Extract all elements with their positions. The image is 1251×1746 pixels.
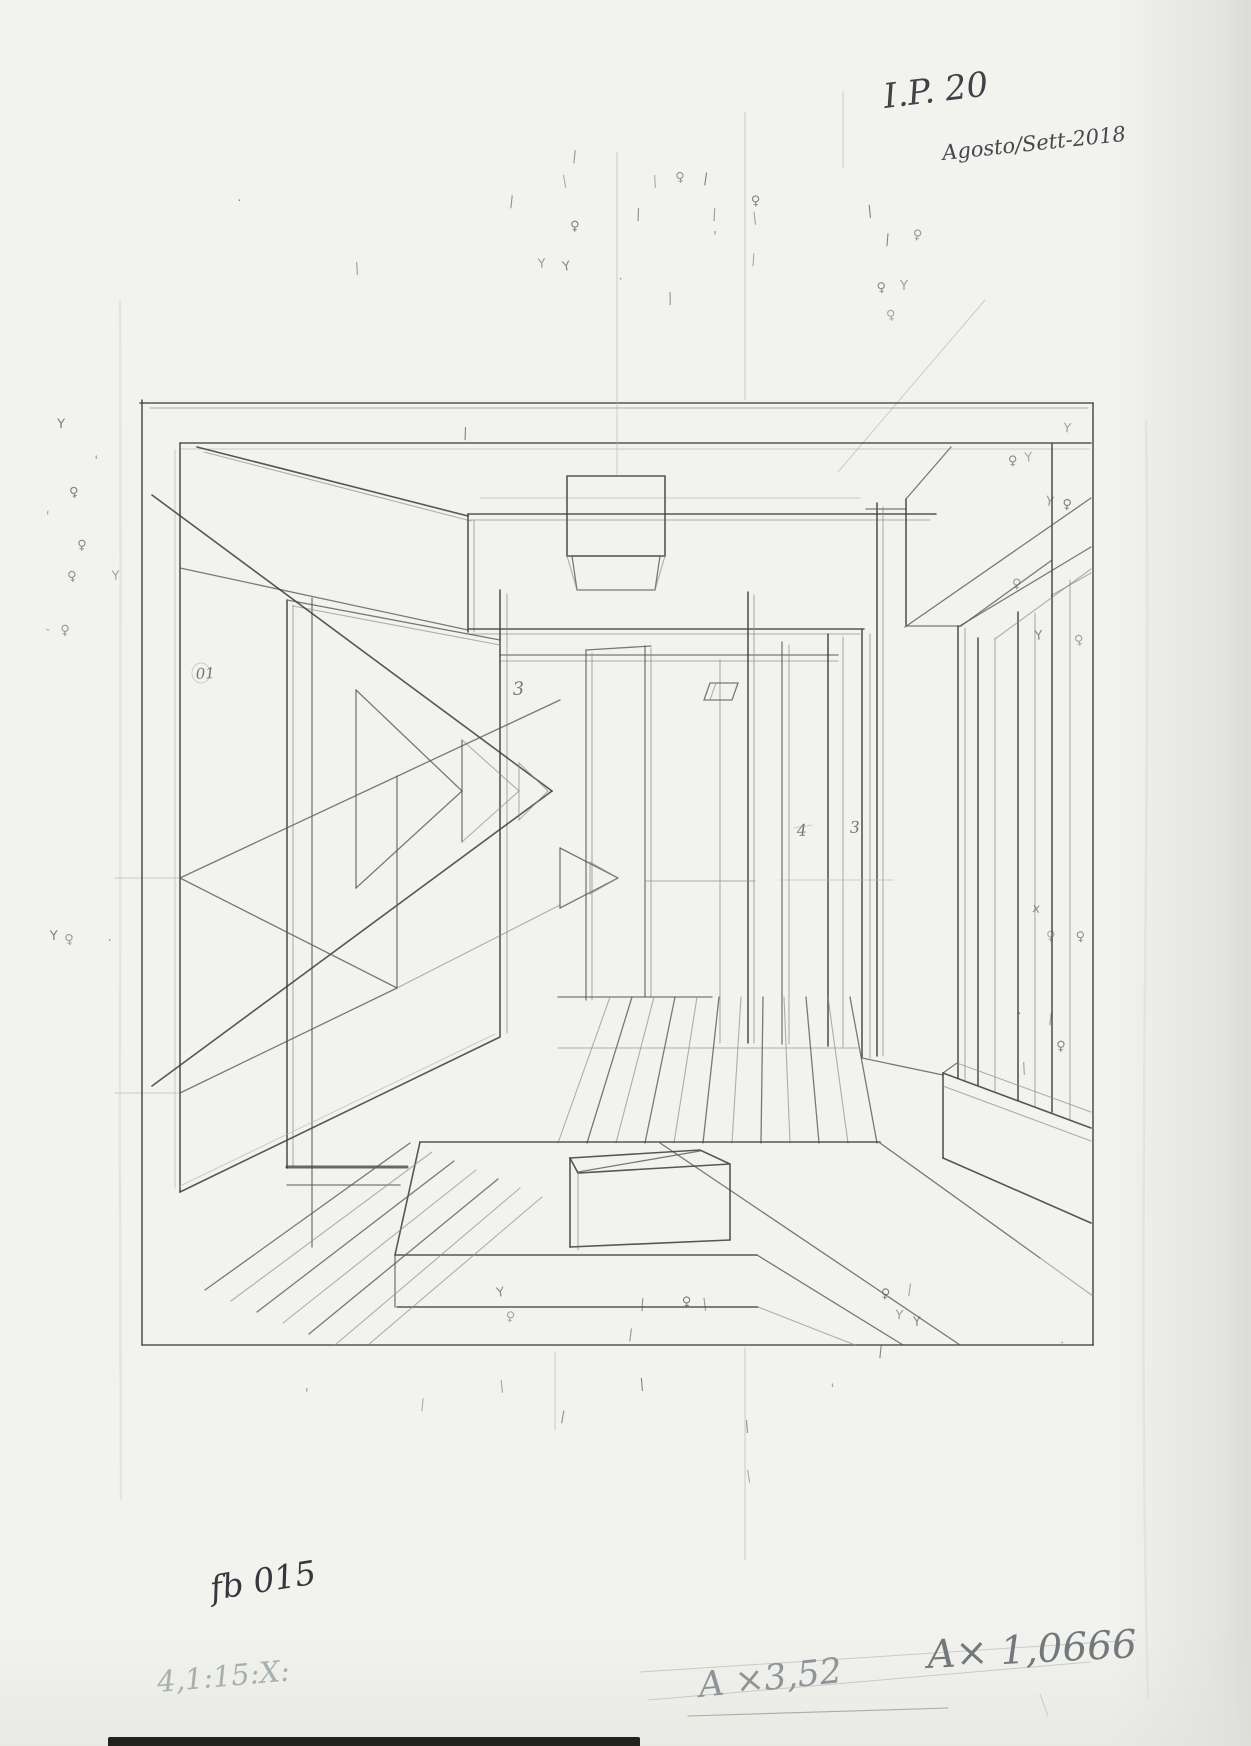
female-mark: ♀ xyxy=(876,280,887,296)
window-bench xyxy=(943,1063,1091,1223)
female-mark: ♀ xyxy=(77,538,87,553)
female-mark: ♀ xyxy=(682,1295,692,1310)
scan-edge-shadow xyxy=(108,1737,640,1746)
x-mark: x xyxy=(1032,901,1042,917)
paper-creases xyxy=(120,300,1148,1700)
outer-frame xyxy=(140,400,1093,1345)
tick-mark: | xyxy=(628,1327,634,1342)
annotation-top-right-date: Agosto/Sett-2018 xyxy=(939,122,1127,165)
female-mark: ♀ xyxy=(68,485,80,501)
female-mark: ♀ xyxy=(879,1286,891,1302)
tick-mark: | xyxy=(509,194,515,209)
y-mark: Y xyxy=(536,256,546,272)
tick-mark: | xyxy=(640,1297,645,1312)
tick-mark: | xyxy=(561,173,568,189)
scanned-paper-sheet: I.P. 20Agosto/Sett-2018fb 0154,1:15:X:A … xyxy=(0,0,1251,1746)
handwritten-annotations: I.P. 20Agosto/Sett-2018fb 0154,1:15:X:A … xyxy=(155,64,1138,1706)
female-mark: ♀ xyxy=(1008,454,1018,469)
tick-mark: | xyxy=(878,1344,884,1359)
perspective-drawing: I.P. 20Agosto/Sett-2018fb 0154,1:15:X:A … xyxy=(0,0,1251,1746)
figure-label-2: 4 xyxy=(795,820,807,840)
stroke-mark: ' xyxy=(830,1382,836,1397)
female-mark: ♀ xyxy=(1062,497,1073,513)
tick-mark: | xyxy=(572,149,578,164)
tick-mark: | xyxy=(702,1297,708,1312)
dash-mark: - xyxy=(44,622,51,638)
tick-mark: | xyxy=(885,232,891,247)
annotation-bottom-left-ratio: 4,1:15:X: xyxy=(155,1654,291,1700)
dot-mark: · xyxy=(1060,1336,1064,1351)
stroke-mark: ' xyxy=(94,454,99,469)
tick-mark: | xyxy=(652,174,657,189)
tick-mark: | xyxy=(744,1419,749,1434)
female-mark: ♀ xyxy=(751,194,761,209)
y-mark: Y xyxy=(49,929,59,944)
figure-labels: 01343 xyxy=(195,664,860,840)
female-mark: ♀ xyxy=(674,170,686,186)
y-mark: Y xyxy=(1033,628,1043,644)
female-mark: ♀ xyxy=(570,219,580,234)
tick-mark: | xyxy=(499,1379,505,1394)
tick-mark: | xyxy=(752,211,758,226)
tick-mark: | xyxy=(751,252,756,267)
lamp-box xyxy=(567,476,665,556)
wall-vent xyxy=(704,683,738,700)
female-mark: ♀ xyxy=(60,623,70,638)
tick-mark: | xyxy=(712,207,717,222)
y-mark: Y xyxy=(899,279,908,294)
dot-mark: · xyxy=(618,272,624,287)
platform-box xyxy=(570,1150,730,1250)
tick-mark: | xyxy=(420,1397,426,1412)
annotation-bottom-center-crossed: A ×3,52 xyxy=(694,1651,844,1706)
tick-mark: | xyxy=(636,207,641,222)
dot-mark: · xyxy=(236,194,242,209)
tick-mark: | xyxy=(1021,1061,1026,1076)
ceiling-beam xyxy=(197,444,1091,1056)
tick-mark: | xyxy=(354,261,359,276)
y-mark: Y xyxy=(110,569,120,584)
tick-mark: | xyxy=(668,291,673,306)
y-mark: Y xyxy=(56,417,65,432)
stroke-mark: ' xyxy=(305,1387,309,1402)
female-mark: ♀ xyxy=(1073,633,1085,649)
female-mark: ♀ xyxy=(64,932,75,948)
y-mark: Y xyxy=(894,1308,904,1324)
lamp-shade xyxy=(572,556,660,590)
annotation-bottom-left-code: fb 015 xyxy=(204,1553,319,1609)
corridor xyxy=(500,590,893,1058)
female-mark: ♀ xyxy=(1075,929,1086,945)
female-mark: ♀ xyxy=(504,1309,516,1325)
female-mark: ♀ xyxy=(885,308,897,324)
left-wall xyxy=(180,568,500,1247)
annotation-bottom-right-scale: A× 1,0666 xyxy=(923,1622,1138,1678)
tick-mark: | xyxy=(745,1468,752,1484)
tick-mark: | xyxy=(702,171,708,186)
tick-mark: | xyxy=(906,1282,912,1297)
y-mark: Y xyxy=(494,1285,505,1301)
y-mark: Y xyxy=(1023,450,1034,466)
ceiling-lamp xyxy=(567,152,665,590)
y-mark: Y xyxy=(560,259,571,275)
female-mark: ♀ xyxy=(1046,929,1056,944)
construction-triangles xyxy=(152,495,618,1093)
female-mark: ♀ xyxy=(1056,1039,1066,1054)
female-mark: ♀ xyxy=(1012,577,1022,592)
tick-mark: | xyxy=(559,1409,566,1425)
tick-mark: | xyxy=(867,204,873,219)
figure-label-3: 3 xyxy=(849,817,860,837)
figure-label-0: 01 xyxy=(195,664,215,683)
female-mark: ♀ xyxy=(911,227,923,243)
corridor-floorboards xyxy=(558,997,877,1143)
window-wall xyxy=(862,547,1091,1119)
dot-mark: · xyxy=(106,933,112,948)
stroke-mark: ' xyxy=(45,509,50,524)
stroke-mark: ' xyxy=(711,229,717,244)
tick-mark: | xyxy=(639,1377,645,1392)
left-floor-planks xyxy=(205,1143,542,1345)
y-mark: Y xyxy=(912,1315,921,1330)
y-mark: Y xyxy=(1062,421,1072,437)
label-circle xyxy=(192,663,812,828)
figure-label-1: 3 xyxy=(512,678,525,700)
pencil-registration-marks: ||♀YY·||♀||♀|'|||♀|Y♀♀|Y'♀'♀Y♀-♀Y♀·Y♀YY♀… xyxy=(44,149,1085,1484)
y-mark: Y xyxy=(1043,494,1054,510)
tick-mark: | xyxy=(463,426,468,441)
platform xyxy=(395,1142,1093,1345)
annotation-top-right-code: I.P. 20 xyxy=(880,64,990,117)
female-mark: ♀ xyxy=(66,569,78,585)
